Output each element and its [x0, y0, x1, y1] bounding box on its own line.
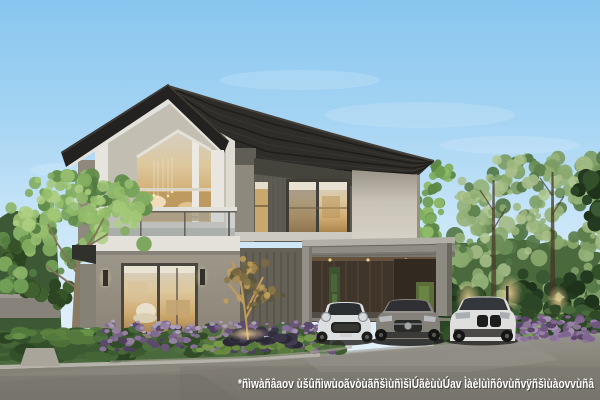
svg-text:*ñìwàñâaov ùšûñìwùoãvòùãñšìùñì: *ñìwàñâaov ùšûñìwùoãvòùãñšìùñìšìÚãèùùÚav… [238, 376, 595, 391]
